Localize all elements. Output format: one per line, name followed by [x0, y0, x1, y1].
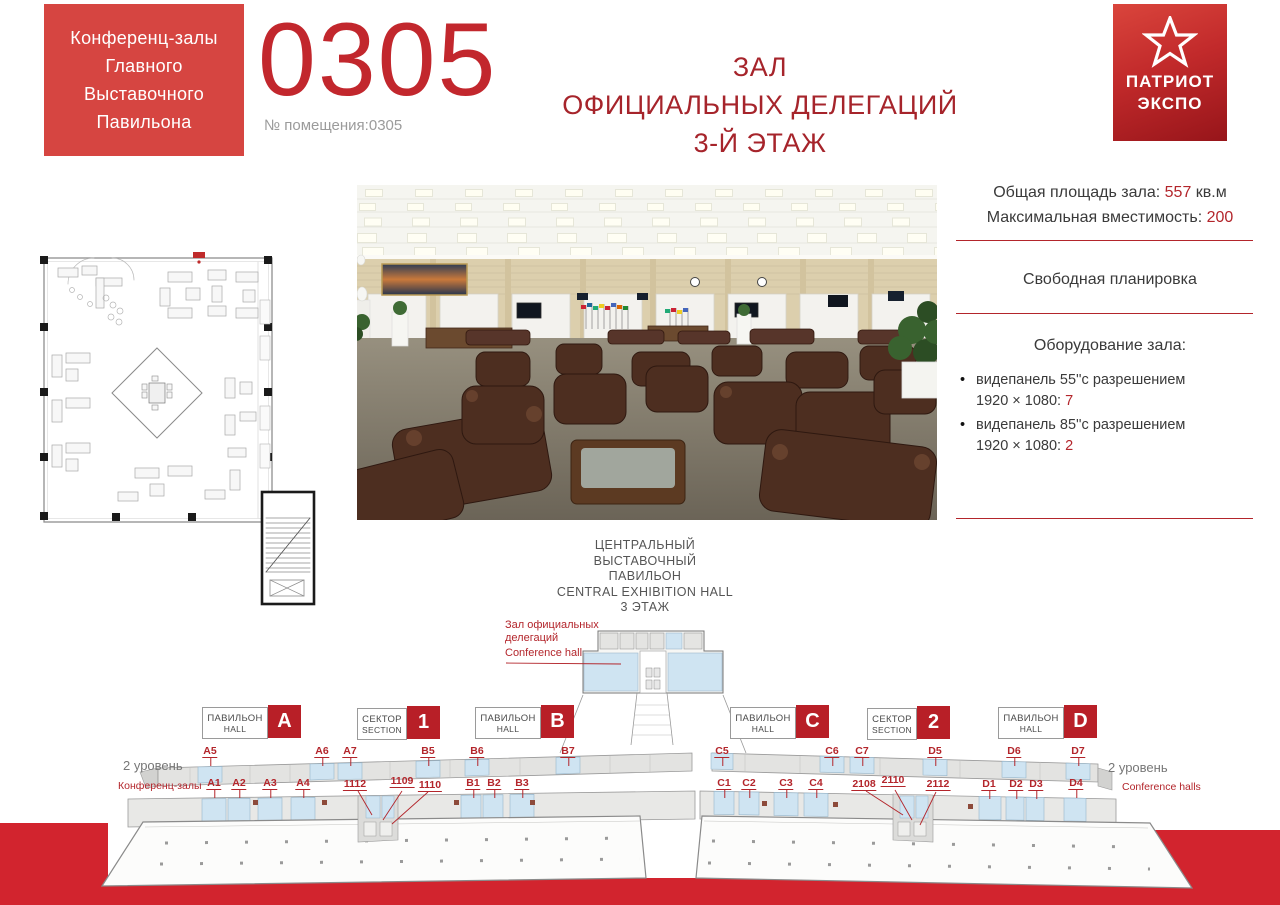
equipment-list: видепанель 55''с разрешением 1920 × 1080…	[956, 370, 1266, 460]
badge-hall-d: ПАВИЛЬОНHALL D	[998, 705, 1097, 739]
page-title: ЗАЛ ОФИЦИАЛЬНЫХ ДЕЛЕГАЦИЙ 3-Й ЭТАЖ	[540, 48, 980, 162]
hall-leader-line	[506, 663, 621, 664]
bottom-right-red-block	[1150, 830, 1280, 905]
header-line: Павильона	[44, 108, 244, 136]
room-label-a1: A1	[206, 778, 221, 790]
badge-hall-b: ПАВИЛЬОНHALL B	[475, 705, 574, 739]
level-label-right: 2 уровень	[1108, 760, 1168, 775]
room-label-c7: C7	[854, 746, 869, 758]
room-label-d4: D4	[1068, 778, 1083, 790]
room-label-1109: 1109	[390, 776, 415, 788]
conference-label-left: Конференц-залы	[118, 780, 202, 792]
room-label-2112: 2112	[926, 779, 951, 791]
room-label-b3: B3	[514, 778, 529, 790]
central-pavilion-title: ЦЕНТРАЛЬНЫЙ ВЫСТАВОЧНЫЙ ПАВИЛЬОН CENTRAL…	[515, 538, 775, 616]
badge-letter: D	[1064, 705, 1097, 738]
equipment-count: 7	[1065, 393, 1073, 409]
info-panel: Общая площадь зала: 557 кв.м Максимальна…	[950, 180, 1270, 230]
room-label-d1: D1	[981, 779, 996, 791]
plant	[349, 301, 948, 398]
badge-letter: B	[541, 705, 574, 738]
badge-letter: A	[268, 705, 301, 738]
floor-plan	[40, 252, 314, 604]
room-label-b5: B5	[420, 746, 435, 758]
room-label-c6: C6	[824, 746, 839, 758]
room-label-1110: 1110	[418, 780, 442, 792]
header-line: Конференц-залы	[44, 24, 244, 52]
hall-label-en: Conference hall	[505, 647, 625, 659]
header-red-box: Конференц-залы Главного Выставочного Пав…	[44, 4, 244, 156]
left-wing-diagram	[102, 753, 695, 886]
area-value: 557	[1165, 184, 1192, 201]
hall-photo	[333, 185, 948, 543]
room-label-b6: B6	[469, 746, 484, 758]
equipment-item: видепанель 85''с разрешением 1920 × 1080…	[956, 415, 1266, 457]
room-label-a7: A7	[342, 746, 357, 758]
stairwell	[262, 492, 314, 604]
room-label-d7: D7	[1070, 746, 1085, 758]
room-label-d6: D6	[1006, 746, 1021, 758]
room-label-c4: C4	[808, 778, 823, 790]
room-label-c2: C2	[741, 778, 756, 790]
city-painting	[382, 264, 467, 295]
room-label-c1: C1	[716, 778, 731, 790]
header-line: Главного	[44, 52, 244, 80]
header-line: Выставочного	[44, 80, 244, 108]
bottom-red-band	[0, 878, 1280, 905]
video-panels	[517, 291, 904, 318]
divider	[956, 518, 1253, 519]
room-label-c5: C5	[714, 746, 729, 758]
divider	[956, 313, 1253, 314]
badge-letter: C	[796, 705, 829, 738]
room-label-a6: A6	[314, 746, 329, 758]
flags	[581, 303, 688, 329]
layout-note: Свободная планировка	[950, 271, 1270, 289]
room-label-1112: 1112	[343, 779, 367, 791]
bottom-left-red-block	[0, 823, 108, 905]
room-label-d5: D5	[927, 746, 942, 758]
location-marker	[193, 252, 205, 258]
wall-clocks	[691, 278, 767, 287]
room-label-b2: B2	[486, 778, 501, 790]
hall-label-ru: Зал официальных делегаций	[505, 619, 610, 645]
badge-hall-c: ПАВИЛЬОНHALL C	[730, 705, 829, 739]
logo-text-1: ПАТРИОТ	[1126, 72, 1214, 92]
room-label-c3: C3	[778, 778, 793, 790]
logo: ПАТРИОТ ЭКСПО	[1113, 4, 1227, 141]
badge-letter: 2	[917, 706, 950, 739]
room-label-a3: A3	[262, 778, 277, 790]
room-number-caption: № помещения:0305	[264, 117, 402, 134]
logo-text-2: ЭКСПО	[1138, 94, 1203, 114]
area-line: Общая площадь зала: 557 кв.м	[950, 180, 1270, 205]
room-label-a2: A2	[231, 778, 246, 790]
equipment-title: Оборудование зала:	[950, 337, 1270, 355]
level-label-left: 2 уровень	[123, 758, 183, 773]
room-label-a4: A4	[295, 778, 310, 790]
capacity-line: Максимальная вместимость: 200	[950, 205, 1270, 230]
badge-letter: 1	[407, 706, 440, 739]
badge-hall-a: ПАВИЛЬОНHALL A	[202, 705, 301, 739]
badge-sector-1: СЕКТОРSECTION 1	[357, 706, 440, 740]
room-label-2108: 2108	[851, 779, 876, 791]
room-label-a5: A5	[202, 746, 217, 758]
room-label-d3: D3	[1028, 779, 1043, 791]
equipment-item: видепанель 55''с разрешением 1920 × 1080…	[956, 370, 1266, 412]
page: Конференц-залы Главного Выставочного Пав…	[0, 0, 1280, 905]
divider	[956, 240, 1253, 241]
room-label-d2: D2	[1008, 779, 1023, 791]
room-label-b1: B1	[465, 778, 480, 790]
star-icon	[1142, 16, 1198, 68]
coffee-table	[571, 440, 685, 504]
room-label-2110: 2110	[881, 775, 906, 787]
badge-sector-2: СЕКТОРSECTION 2	[867, 706, 950, 740]
equipment-count: 2	[1065, 438, 1073, 454]
leather-furniture	[466, 329, 914, 345]
room-number: 0305	[258, 8, 468, 112]
capacity-value: 200	[1207, 209, 1234, 226]
conference-label-right: Conference halls	[1122, 781, 1201, 793]
room-label-b7: B7	[560, 746, 575, 758]
